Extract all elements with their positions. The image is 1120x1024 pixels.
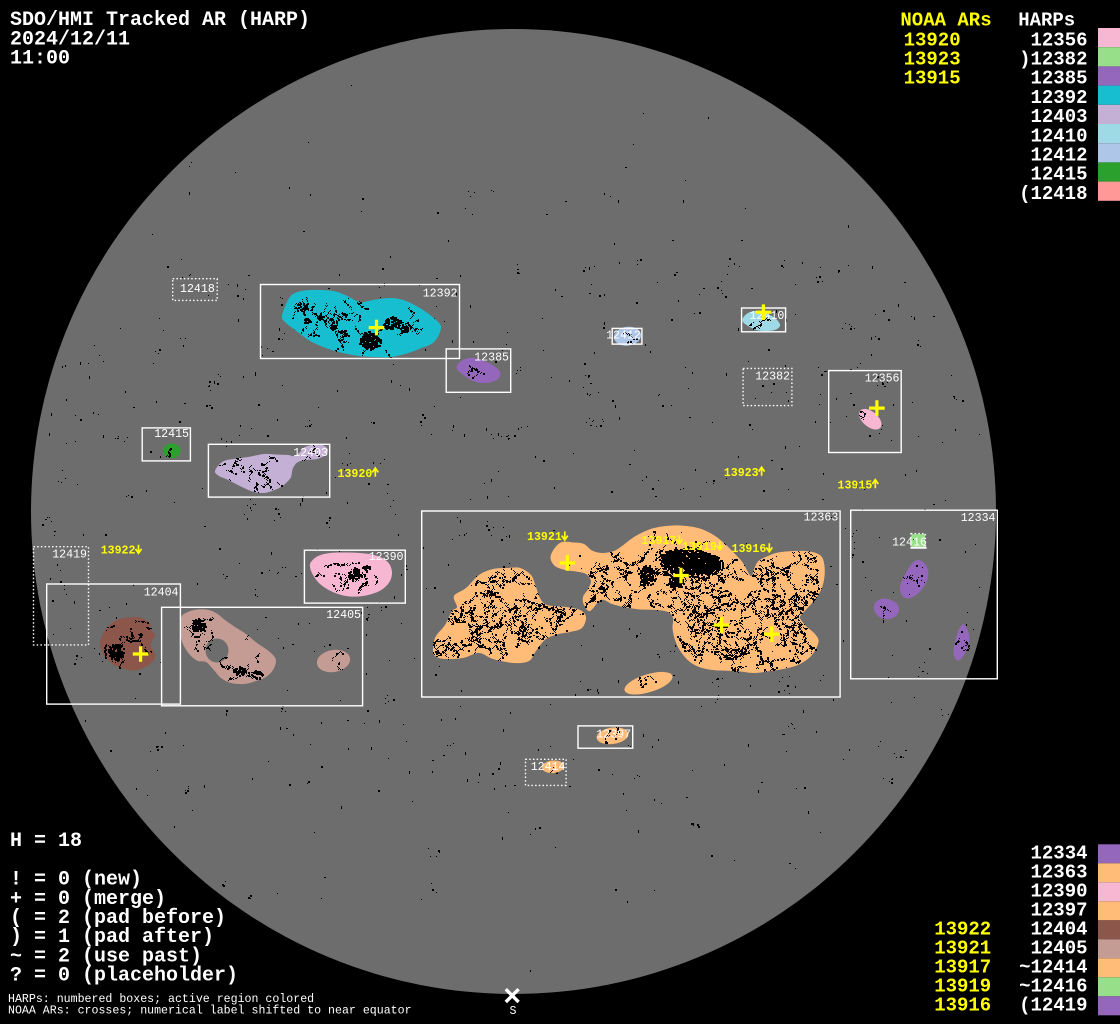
svg-text:12415: 12415 bbox=[154, 428, 189, 441]
svg-text:12382: 12382 bbox=[755, 371, 790, 384]
svg-text:12390: 12390 bbox=[369, 551, 404, 564]
svg-text:13916: 13916 bbox=[732, 543, 767, 556]
svg-text:13915: 13915 bbox=[838, 479, 873, 492]
svg-text:13921: 13921 bbox=[527, 531, 562, 544]
svg-text:12418: 12418 bbox=[180, 283, 215, 296]
svg-text:12385: 12385 bbox=[474, 352, 509, 365]
svg-text:12334: 12334 bbox=[961, 512, 996, 525]
svg-text:H = 18: H = 18 bbox=[10, 830, 82, 853]
svg-text:13915: 13915 bbox=[904, 68, 961, 90]
svg-text:12392: 12392 bbox=[423, 287, 458, 300]
svg-text:12416: 12416 bbox=[892, 537, 927, 550]
svg-text:12404: 12404 bbox=[144, 586, 179, 599]
svg-text:13917: 13917 bbox=[642, 535, 677, 548]
svg-text:? = 0 (placeholder): ? = 0 (placeholder) bbox=[10, 965, 238, 988]
svg-text:12356: 12356 bbox=[865, 373, 900, 386]
svg-text:NOAA ARs: crosses; numerical l: NOAA ARs: crosses; numerical label shift… bbox=[8, 1005, 412, 1018]
svg-text:S: S bbox=[510, 1005, 517, 1018]
svg-text:(12418: (12418 bbox=[1019, 183, 1087, 205]
svg-text:12405: 12405 bbox=[326, 609, 361, 622]
svg-text:12397: 12397 bbox=[596, 728, 631, 741]
svg-text:12419: 12419 bbox=[52, 549, 87, 562]
svg-text:13916: 13916 bbox=[934, 994, 991, 1016]
svg-text:12403: 12403 bbox=[293, 447, 328, 460]
svg-text:(12419: (12419 bbox=[1019, 994, 1087, 1016]
svg-text:11:00: 11:00 bbox=[10, 48, 70, 71]
svg-text:13923: 13923 bbox=[724, 467, 759, 480]
svg-text:12414: 12414 bbox=[531, 761, 566, 774]
svg-text:12412: 12412 bbox=[606, 330, 641, 343]
svg-text:13919: 13919 bbox=[682, 541, 717, 554]
svg-text:13922: 13922 bbox=[101, 545, 136, 558]
svg-text:12363: 12363 bbox=[804, 511, 839, 524]
svg-text:13920: 13920 bbox=[338, 468, 373, 481]
